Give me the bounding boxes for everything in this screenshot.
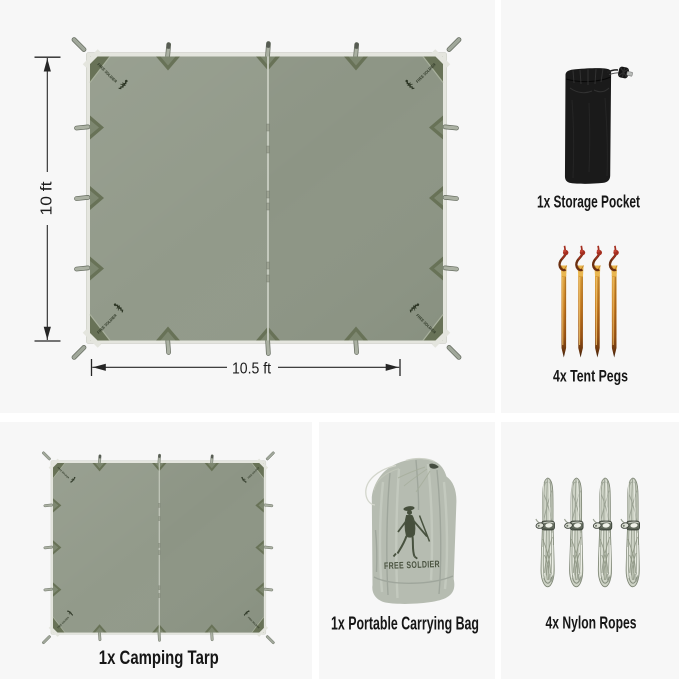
svg-text:1x Portable Carrying Bag: 1x Portable Carrying Bag (331, 614, 479, 634)
svg-text:1x Camping Tarp: 1x Camping Tarp (99, 648, 219, 669)
svg-text:4x Nylon Ropes: 4x Nylon Ropes (546, 613, 637, 633)
svg-text:FREE SOLDIER: FREE SOLDIER (384, 559, 440, 572)
svg-text:4x Tent Pegs: 4x Tent Pegs (553, 367, 628, 386)
svg-text:10.5 ft: 10.5 ft (232, 361, 271, 378)
svg-text:10 ft: 10 ft (39, 181, 56, 216)
svg-text:1x Storage Pocket: 1x Storage Pocket (537, 192, 640, 212)
